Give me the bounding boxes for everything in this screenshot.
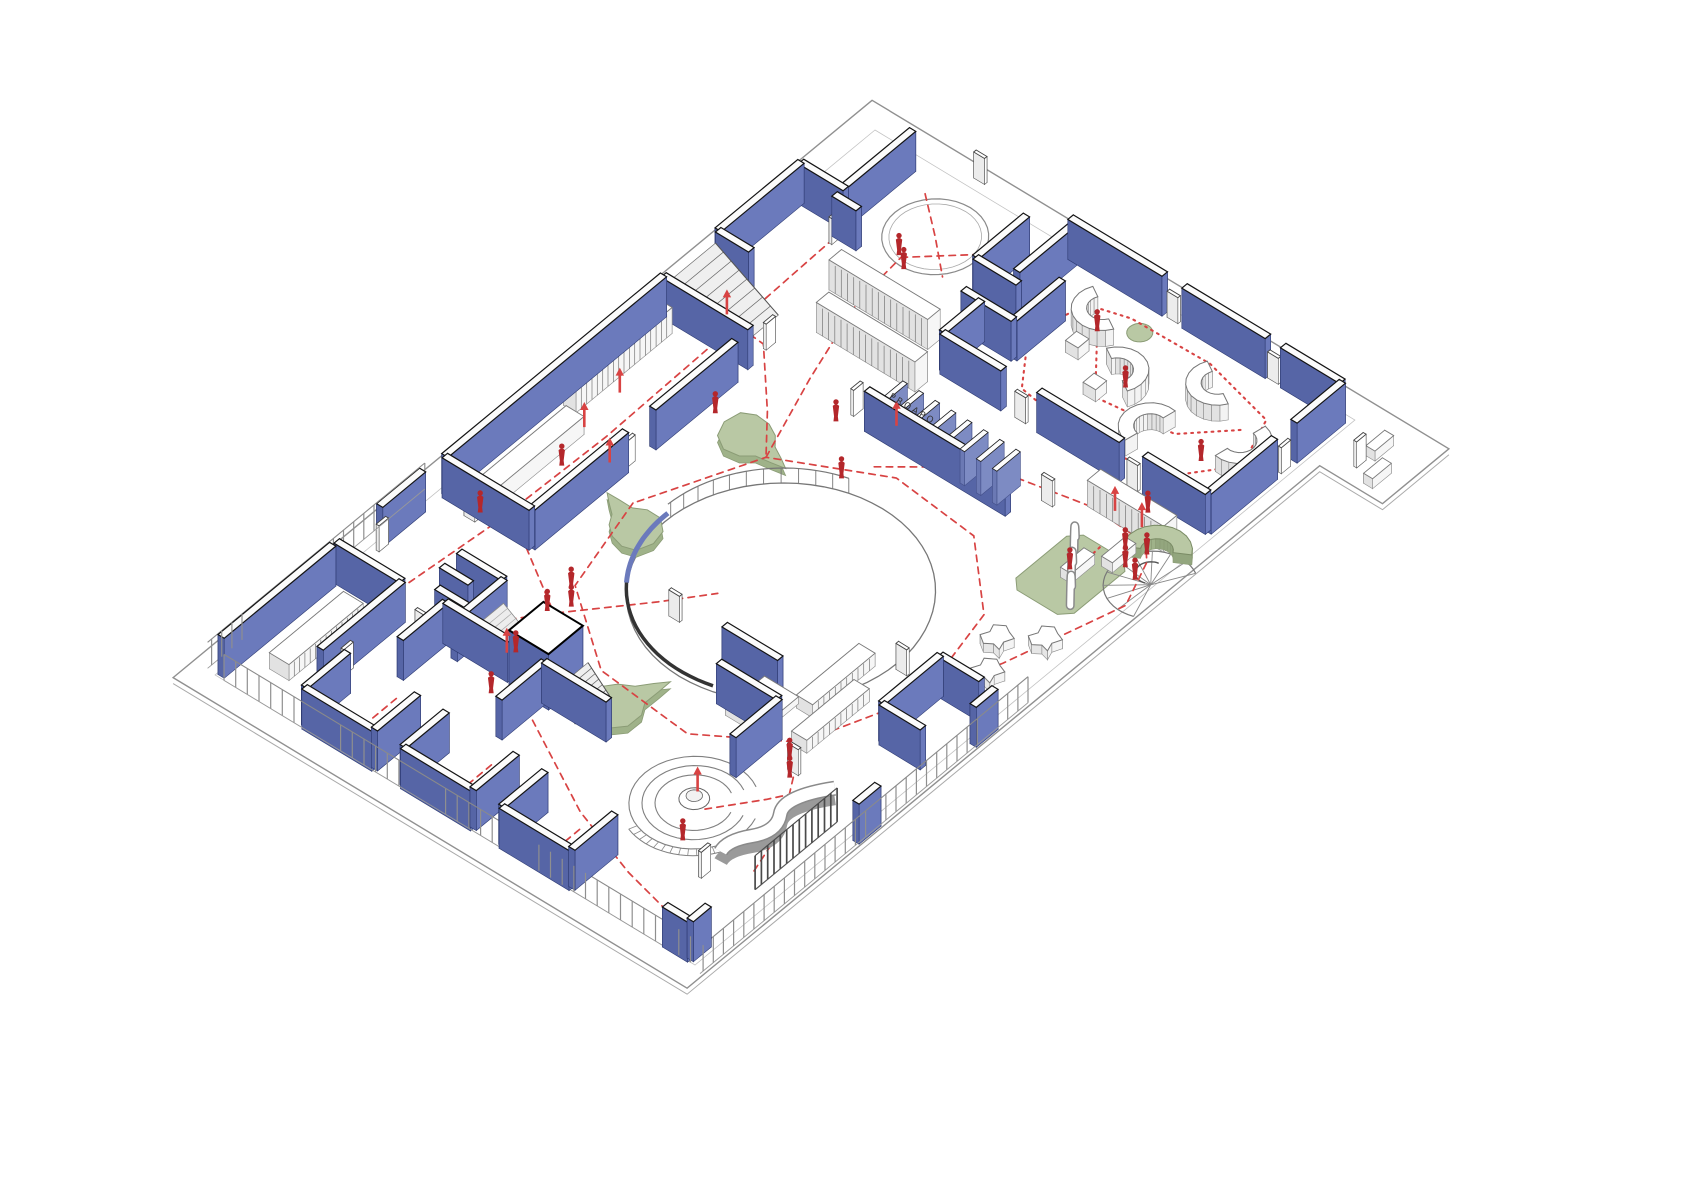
floor-layer xyxy=(173,100,1449,994)
floor-plan-canvas: PROAPO xyxy=(0,0,1687,1191)
axonometric-floor-plan-diagram: PROAPO xyxy=(0,0,1687,1191)
